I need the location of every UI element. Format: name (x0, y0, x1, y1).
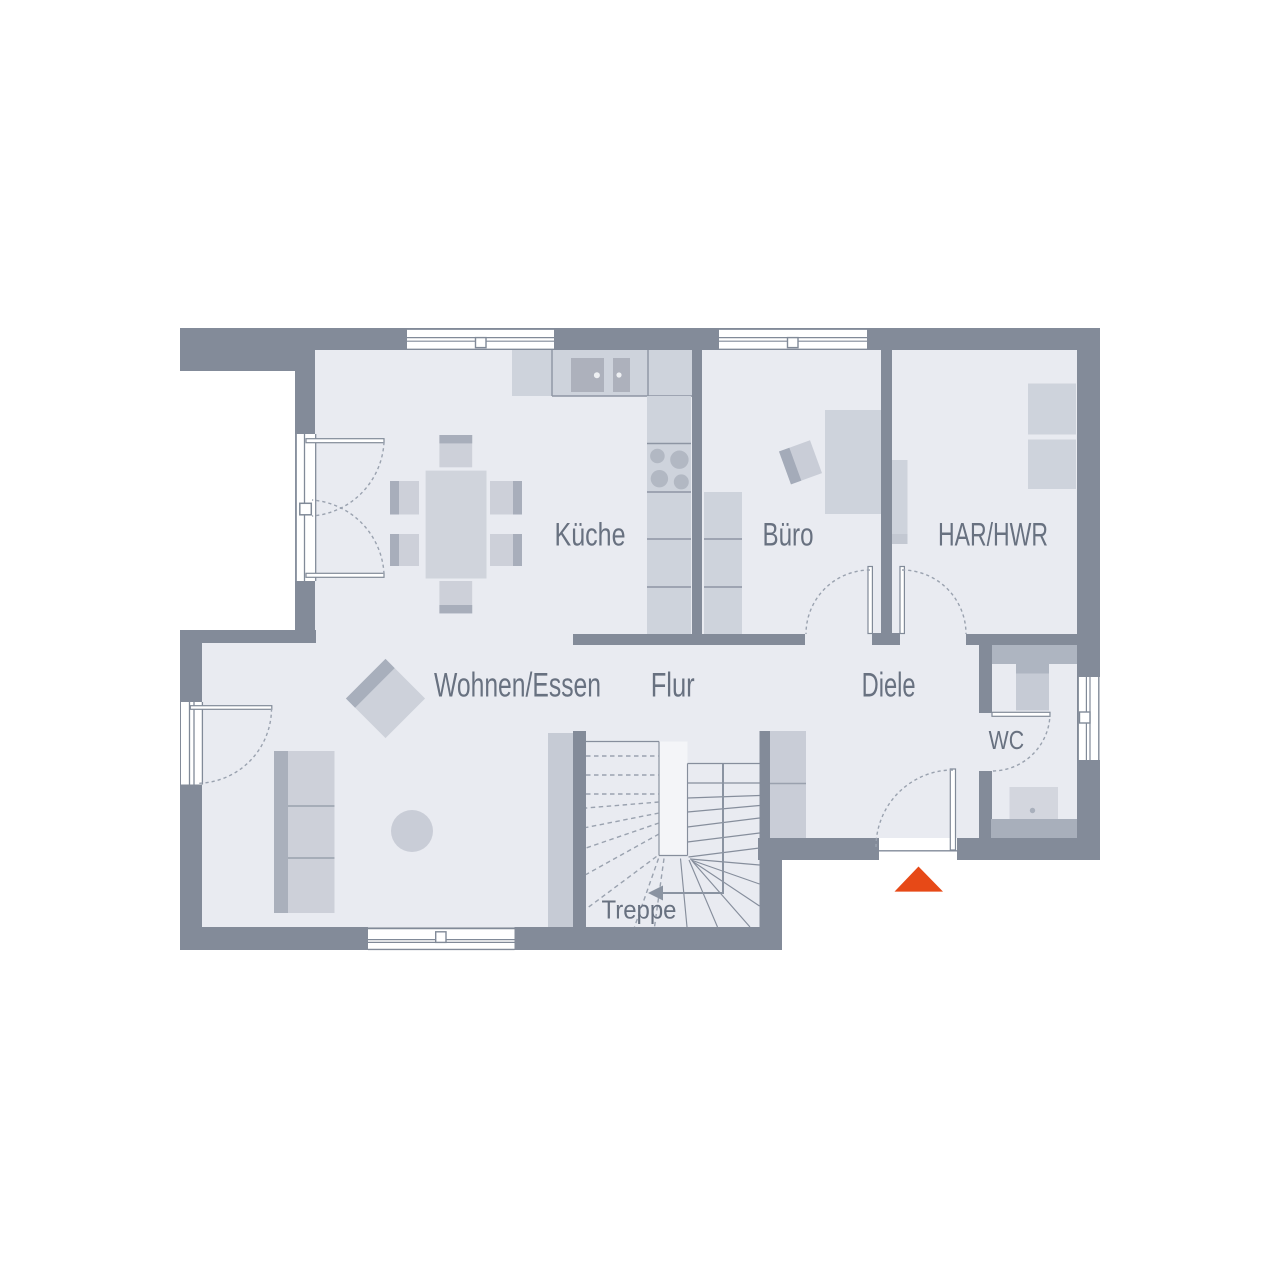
svg-text:Diele: Diele (862, 667, 916, 705)
svg-text:Küche: Küche (555, 517, 626, 553)
svg-text:Treppe: Treppe (602, 895, 677, 925)
svg-text:Wohnen/Essen: Wohnen/Essen (434, 667, 601, 705)
svg-text:HAR/HWR: HAR/HWR (938, 517, 1048, 553)
svg-text:Büro: Büro (763, 517, 814, 553)
svg-text:WC: WC (989, 725, 1025, 755)
svg-text:Flur: Flur (651, 667, 695, 705)
